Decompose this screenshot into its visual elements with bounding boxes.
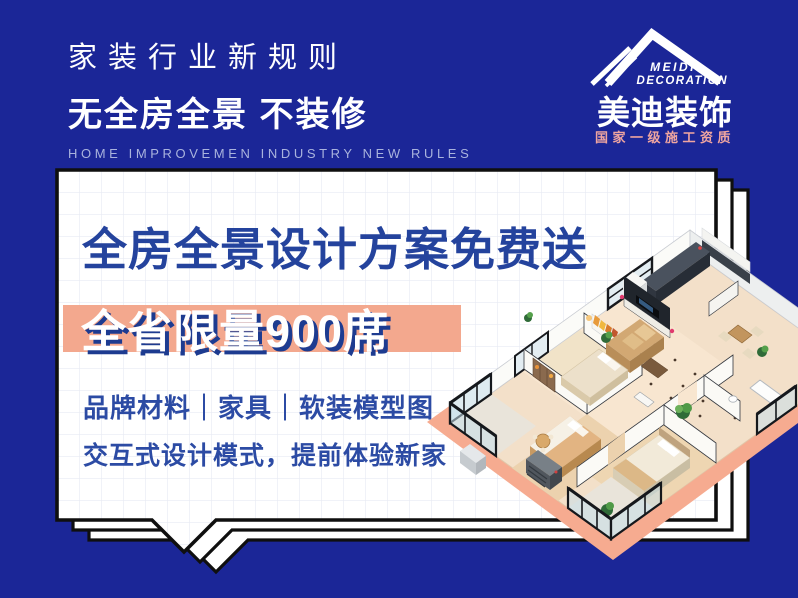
card-headline: 全房全景设计方案免费送 xyxy=(82,213,588,278)
highlight-text: 全省限量900席 xyxy=(81,295,389,360)
feature-line-2: 交互式设计模式，提前体验新家 xyxy=(83,436,447,472)
highlight-band: 全省限量900席 xyxy=(63,305,461,352)
card-content: 全房全景设计方案免费送 全省限量900席 品牌材料｜家具｜软装模型图 交互式设计… xyxy=(0,0,798,598)
promo-banner: 家装行业新规则 无全房全景 不装修 HOME IMPROVEMEN INDUST… xyxy=(0,0,798,598)
feature-line-1: 品牌材料｜家具｜软装模型图 xyxy=(83,388,434,425)
